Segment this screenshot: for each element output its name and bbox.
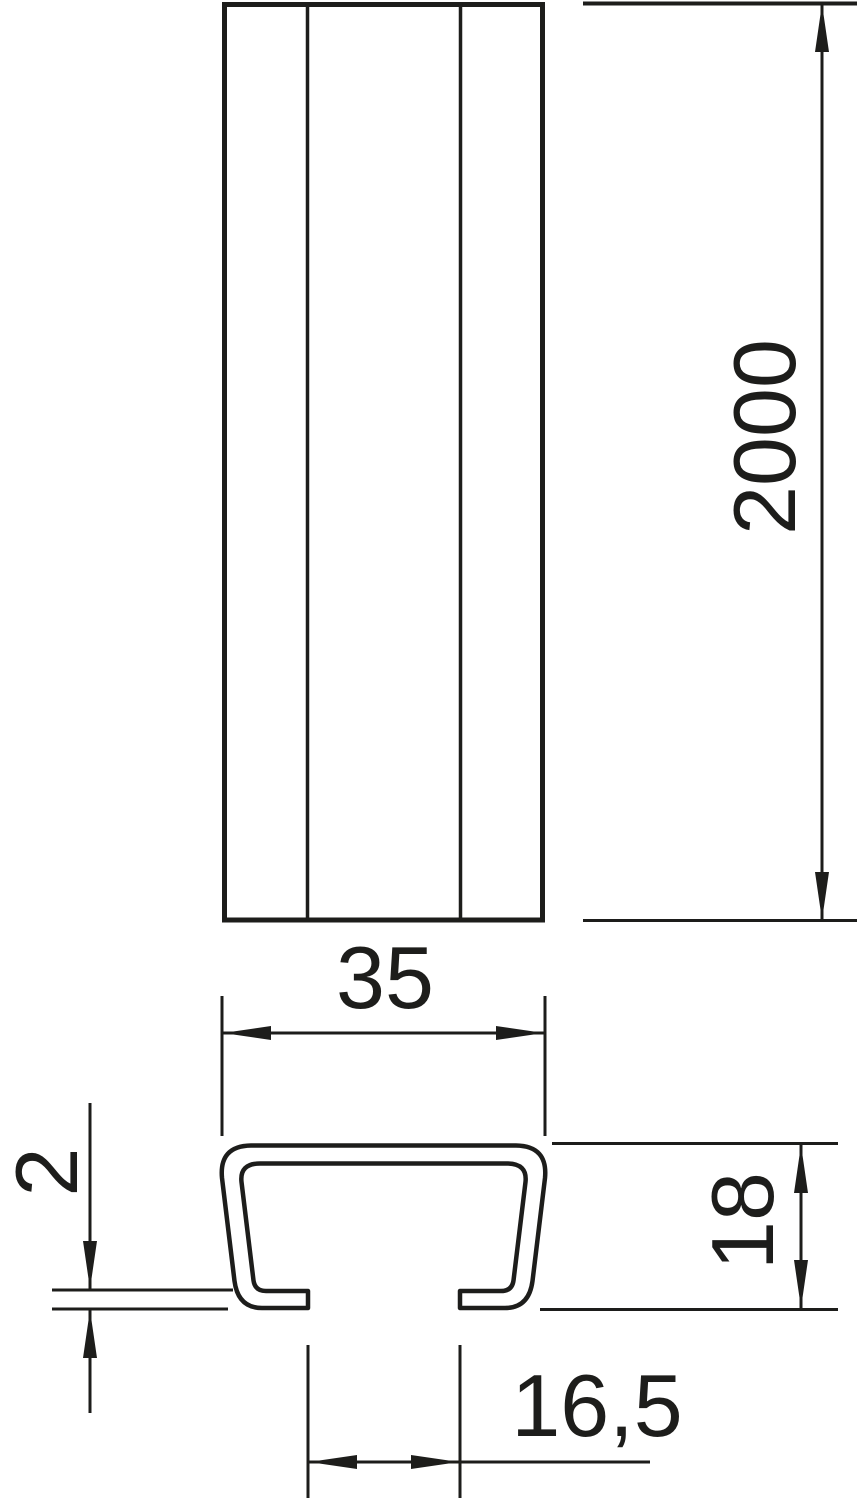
dim-label-thickness: 2	[3, 1148, 91, 1197]
dim-label-length: 2000	[721, 339, 809, 535]
dimension-height-18	[540, 1144, 838, 1310]
dim-2000-arrow-up-icon	[815, 4, 829, 52]
dim-35-arrow-right-icon	[496, 1026, 544, 1040]
dim-label-height: 18	[699, 1172, 787, 1270]
cross-section-view	[222, 1146, 546, 1309]
dim-2-arrow-down-icon	[83, 1241, 97, 1289]
dim-label-width: 35	[336, 934, 434, 1022]
dim-18-arrow-down-icon	[794, 1260, 808, 1308]
technical-drawing-canvas	[0, 0, 859, 1500]
front-view	[225, 3, 543, 920]
dim-35-arrow-left-icon	[223, 1026, 271, 1040]
dim-18-arrow-up-icon	[794, 1145, 808, 1193]
dim-2000-arrow-down-icon	[815, 872, 829, 920]
cross-section-profile-outline	[222, 1146, 546, 1309]
dim-16-5-arrow-left-icon	[309, 1455, 357, 1469]
technical-drawing-page: 2000 35 2 18 16,5	[0, 0, 859, 1500]
dim-16-5-arrow-right-icon	[411, 1455, 459, 1469]
dim-2-arrow-up-icon	[83, 1310, 97, 1358]
dim-label-slot: 16,5	[511, 1362, 682, 1450]
front-view-outline	[225, 5, 543, 921]
